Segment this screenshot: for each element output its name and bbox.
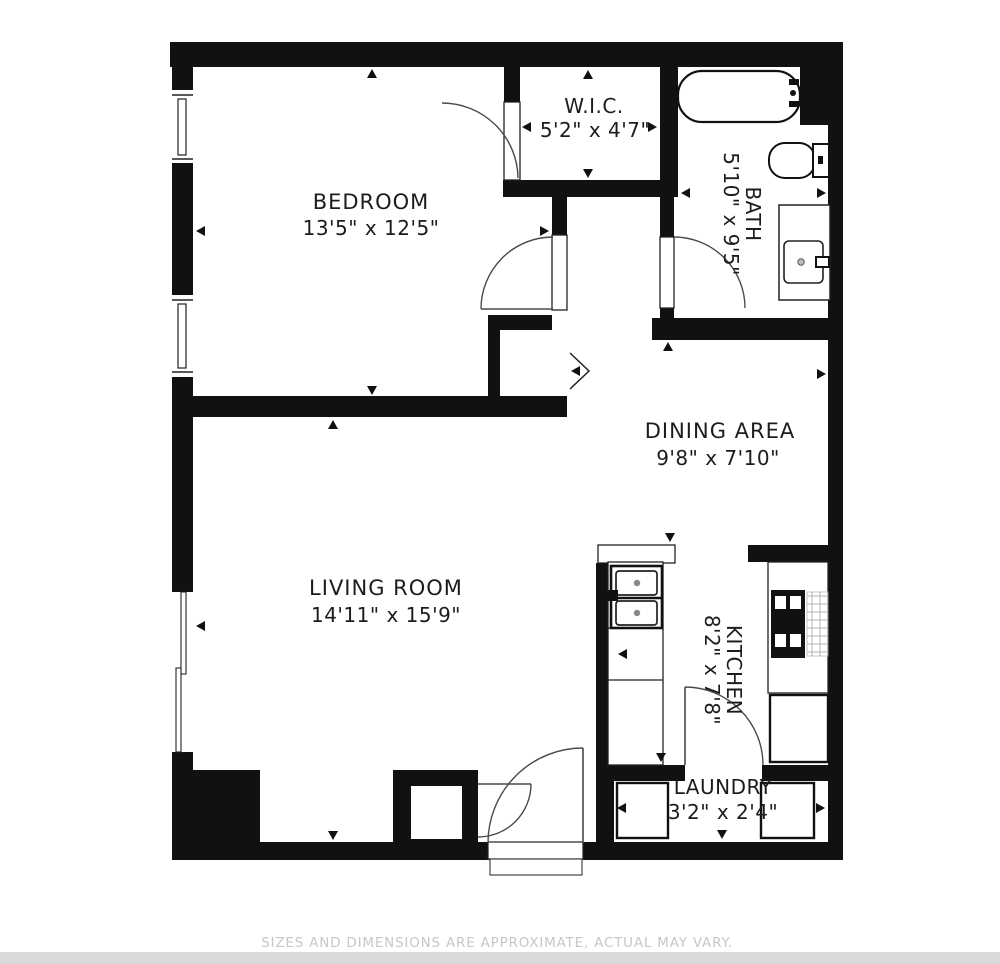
bottom-strip — [0, 952, 1000, 964]
bathtub-icon — [678, 71, 800, 122]
window-icon — [172, 295, 193, 377]
living-label: LIVING ROOM — [309, 576, 463, 600]
window-icon — [172, 90, 193, 163]
fridge-icon — [770, 695, 828, 762]
disclaimer-text: SIZES AND DIMENSIONS ARE APPROXIMATE, AC… — [261, 935, 733, 951]
sliding-door-icon — [172, 592, 193, 752]
kitchen-label: KITCHEN — [722, 625, 746, 715]
laundry-dims: 3'2" x 2'4" — [668, 800, 778, 824]
stove-icon — [771, 590, 828, 658]
bath-dims: 5'10" x 9'5" — [719, 152, 743, 276]
dining-dims: 9'8" x 7'10" — [656, 446, 780, 470]
wic-dims: 5'2" x 4'7" — [540, 118, 650, 142]
laundry-label: LAUNDRY — [674, 775, 773, 799]
dining-label: DINING AREA — [645, 419, 796, 443]
kitchen-sink-icon — [603, 566, 662, 628]
bedroom-label: BEDROOM — [313, 190, 430, 214]
bath-label: BATH — [741, 186, 765, 241]
kitchen-label-group: KITCHEN 8'2" x 7'8" — [700, 615, 746, 725]
kitchen-dims: 8'2" x 7'8" — [700, 615, 724, 725]
bedroom-dims: 13'5" x 12'5" — [303, 216, 440, 240]
floor-plan-canvas: BEDROOM 13'5" x 12'5" W.I.C. 5'2" x 4'7"… — [0, 0, 1000, 964]
living-dims: 14'11" x 15'9" — [311, 603, 461, 627]
bathroom-sink-icon — [779, 205, 830, 300]
floor-plan-page: BEDROOM 13'5" x 12'5" W.I.C. 5'2" x 4'7"… — [0, 0, 1000, 964]
wic-label: W.I.C. — [564, 94, 623, 118]
page-background — [0, 0, 1000, 964]
toilet-icon — [769, 143, 829, 178]
